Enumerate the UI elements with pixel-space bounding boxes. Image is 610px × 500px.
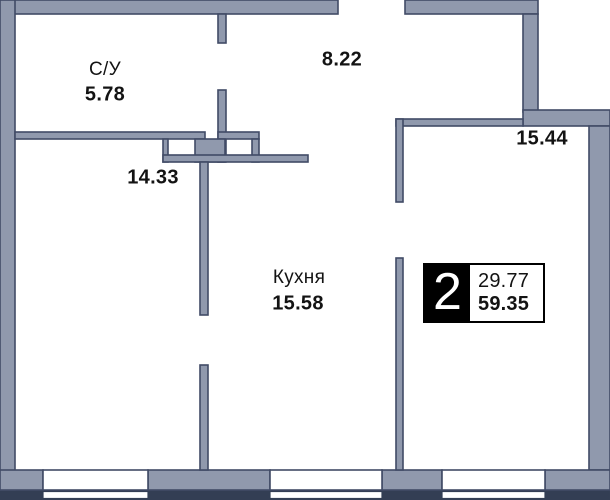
room-label-kitchen: Кухня xyxy=(273,267,325,289)
room-area-kitchen: 15.58 xyxy=(272,293,324,316)
badge-living-area: 29.77 xyxy=(478,270,543,293)
badge-rooms-count: 2 xyxy=(425,265,470,321)
apartment-badge: 2 29.77 59.35 xyxy=(423,263,545,323)
room-area-bathroom: 5.78 xyxy=(85,84,125,107)
room-label-bathroom: С/У xyxy=(89,59,121,81)
room-area-hallway: 8.22 xyxy=(322,49,362,72)
room-area-room-1: 14.33 xyxy=(127,167,179,190)
floor-plan: С/У 5.78 8.22 14.33 Кухня 15.58 15.44 2 … xyxy=(0,0,610,500)
windows xyxy=(43,470,545,499)
room-area-room-2: 15.44 xyxy=(516,128,568,151)
interior-walls xyxy=(15,14,523,470)
badge-total-area: 59.35 xyxy=(478,293,543,316)
badge-areas: 29.77 59.35 xyxy=(470,265,543,321)
